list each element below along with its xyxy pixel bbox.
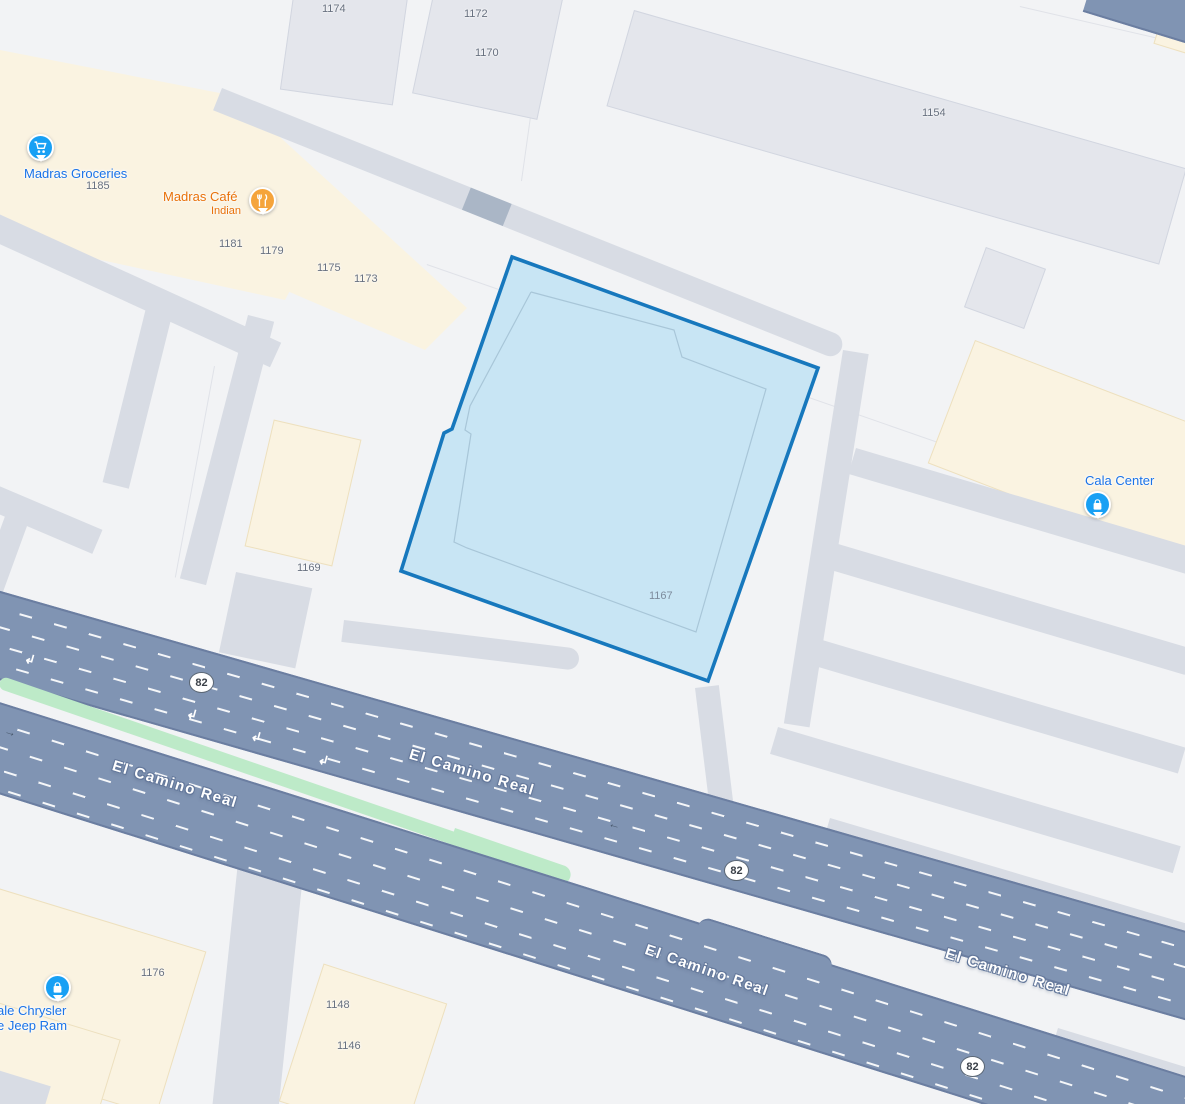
turn-arrow-icon: ↲ xyxy=(249,728,264,746)
building-number-1173: 1173 xyxy=(354,273,378,285)
building-number-1172: 1172 xyxy=(464,8,488,20)
building-number-1176: 1176 xyxy=(141,967,165,979)
building-number-1148: 1148 xyxy=(326,999,350,1011)
parcel-polygon xyxy=(401,257,818,681)
building-1154 xyxy=(606,10,1185,265)
driveway xyxy=(103,292,177,489)
route-shield-82: 82 xyxy=(724,860,749,881)
building-number-1174: 1174 xyxy=(322,3,346,15)
map-canvas[interactable]: ↲ ↲ ↲ ↲ ← → 82 82 82 El Camino Real El C… xyxy=(0,0,1185,1104)
merge-arrow-icon: ← xyxy=(607,816,622,833)
building-number-1170: 1170 xyxy=(475,47,499,59)
chrysler-dealer-pin[interactable] xyxy=(44,974,71,1001)
building-1172 xyxy=(412,0,564,120)
route-shield-82: 82 xyxy=(189,672,214,693)
selected-parcel[interactable] xyxy=(395,250,827,688)
building-number-1179: 1179 xyxy=(260,245,284,257)
poi-label-chrysler-line2[interactable]: e Jeep Ram xyxy=(0,1018,67,1033)
cala-center-pin[interactable] xyxy=(1084,491,1111,518)
shopping-cart-icon xyxy=(34,141,48,154)
crosswalk xyxy=(462,188,512,227)
poi-building-1169 xyxy=(245,420,362,567)
poi-label-madras-groceries[interactable]: Madras Groceries xyxy=(24,166,127,181)
poi-label-madras-cafe-cuisine: Indian xyxy=(211,205,241,217)
oneway-arrow-icon: → xyxy=(3,723,19,740)
poi-label-cala-center[interactable]: Cala Center xyxy=(1085,473,1154,488)
restaurant-icon xyxy=(256,194,269,207)
poi-label-chrysler-line1[interactable]: ale Chrysler xyxy=(0,1003,66,1018)
building-number-1181: 1181 xyxy=(219,238,243,250)
parcel-number-1167: 1167 xyxy=(649,590,673,602)
building-number-1185: 1185 xyxy=(86,180,110,192)
shopping-bag-icon xyxy=(1091,498,1104,511)
building-number-1154: 1154 xyxy=(922,107,946,119)
shopping-bag-icon xyxy=(51,981,64,994)
madras-cafe-pin[interactable] xyxy=(249,187,276,214)
driveway xyxy=(219,572,312,668)
building-number-1146: 1146 xyxy=(337,1040,361,1052)
building-number-1169: 1169 xyxy=(297,562,321,574)
poi-label-madras-cafe[interactable]: Madras Café xyxy=(163,189,237,204)
building-number-1175: 1175 xyxy=(317,262,341,274)
madras-groceries-pin[interactable] xyxy=(27,134,54,161)
route-shield-82: 82 xyxy=(960,1056,985,1077)
building-1174 xyxy=(280,0,408,105)
small-building xyxy=(964,247,1046,329)
poi-area-1148 xyxy=(279,963,447,1104)
driveway xyxy=(0,508,31,599)
